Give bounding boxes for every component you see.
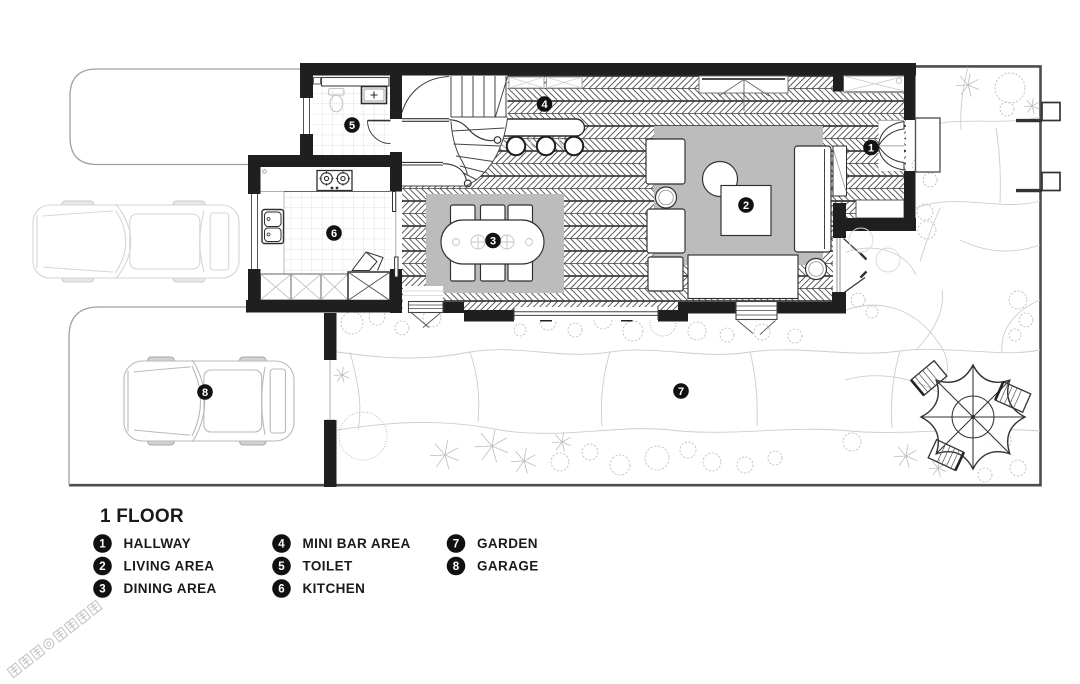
svg-text:3: 3 — [490, 235, 496, 247]
svg-text:LIVING AREA: LIVING AREA — [124, 559, 215, 574]
svg-text:GARAGE: GARAGE — [477, 559, 539, 574]
svg-text:1: 1 — [99, 539, 106, 551]
svg-text:GARDEN: GARDEN — [477, 536, 538, 551]
svg-text:2: 2 — [743, 200, 749, 212]
svg-text:3: 3 — [99, 584, 105, 596]
svg-text:6: 6 — [331, 228, 337, 240]
svg-text:HALLWAY: HALLWAY — [124, 536, 192, 551]
svg-text:6: 6 — [278, 584, 284, 596]
svg-text:2: 2 — [99, 561, 105, 573]
svg-text:5: 5 — [349, 120, 355, 132]
svg-text:MINI BAR AREA: MINI BAR AREA — [303, 536, 411, 551]
svg-text:7: 7 — [453, 539, 459, 551]
svg-text:4: 4 — [541, 99, 548, 111]
svg-text:8: 8 — [202, 387, 208, 399]
svg-text:TOILET: TOILET — [303, 559, 354, 574]
svg-text:1 FLOOR: 1 FLOOR — [100, 506, 184, 527]
svg-text:KITCHEN: KITCHEN — [303, 581, 366, 596]
svg-text:8: 8 — [453, 561, 460, 573]
svg-text:5: 5 — [278, 561, 285, 573]
svg-text:7: 7 — [678, 386, 684, 398]
svg-text:4: 4 — [278, 539, 285, 551]
svg-text:1: 1 — [868, 142, 874, 154]
svg-text:DINING AREA: DINING AREA — [124, 581, 217, 596]
